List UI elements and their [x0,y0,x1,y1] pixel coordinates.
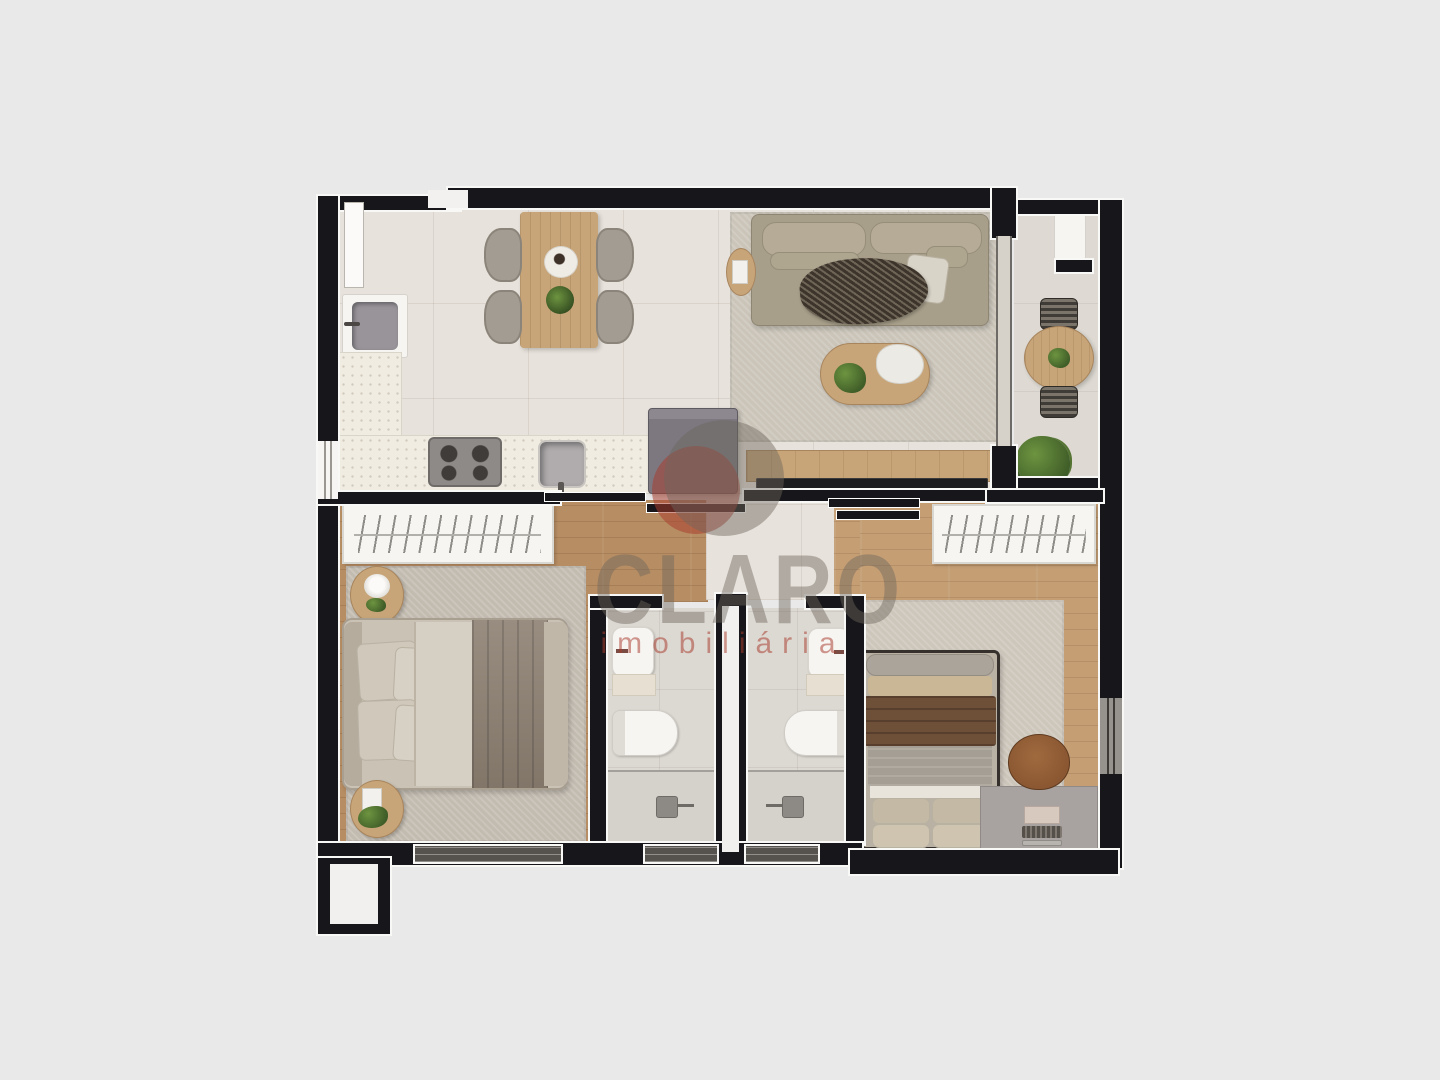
wall-bottom-right [848,848,1120,876]
hall-floor-tile [706,500,836,600]
bathroom1-counter [612,674,656,696]
nightstand-bowl [364,574,390,598]
balcony-glass-door [996,236,1012,446]
side-table-card [732,260,748,284]
bedroom2-window [1100,698,1122,774]
salad-bowl [546,286,574,314]
bath-center-shaft [722,606,739,852]
wall-bath1-left [588,594,608,846]
bathroom1-toilet [612,710,678,756]
bedroom1-sliding-door-panel [646,503,746,513]
kitchen-window [318,441,338,499]
bedroom2-sliding-door-panel [836,510,920,520]
floor-plan-image: CLARO imobiliária [0,0,1440,1080]
bedroom2-wardrobe [932,504,1096,564]
wall-balcony-divider-top [990,186,1018,240]
laundry-faucet-icon [344,322,360,326]
laptop-base [1022,840,1062,846]
laptop-screen [1024,806,1060,824]
dinnerware-plate [544,246,578,278]
dining-chair [596,228,634,282]
dining-chair [484,228,522,282]
bed1-folded-edge [544,622,568,786]
wall-left [316,194,340,850]
dining-chair [484,290,522,344]
bed2-sheet-edge [870,786,990,798]
balcony-niche-wall [1054,258,1094,274]
bathroom2-window [744,844,820,864]
entry-door-leaf [344,202,364,288]
bedroom1-window [413,844,563,864]
refrigerator [648,408,738,494]
bedroom1-sliding-door-rail [544,492,646,502]
bathroom1-window [643,844,719,864]
wall-top-main [446,186,1000,210]
bed2-tan-band [868,676,992,696]
nightstand-plant [366,598,386,612]
laptop-keyboard [1022,826,1062,838]
balcony-table-plant [1048,348,1070,368]
balcony-cabinet [1054,214,1086,260]
cooktop [428,437,502,487]
bed2-brown-blanket [864,696,996,746]
bathroom1-sink [612,627,654,677]
bed1-blanket [472,620,548,788]
wall-bath2-right [844,594,866,846]
bed1-sheet [414,622,476,786]
kitchen-sink [538,440,586,488]
wall-bedroom2-corner [985,488,1105,504]
bathroom2-shower-drain [782,796,804,818]
bed2-pillow [872,798,930,824]
desk-chair [1008,734,1070,790]
bathroom1-shower-drain [656,796,678,818]
bed2-pillow [872,824,930,848]
entry-door-opening [428,190,468,208]
wall-kitchen-bottom [316,490,562,506]
bedroom1-wardrobe [342,504,554,564]
bathroom2-shower-arm-icon [766,804,782,807]
bed2-mattress-roll [866,654,994,676]
bathroom2-toilet [784,710,850,756]
coffee-table-tray [876,344,924,384]
laundry-sink-basin [352,302,398,350]
bed2-duvet [868,746,992,786]
bedroom2-sliding-door-rail [828,498,920,508]
dining-chair [596,290,634,344]
wall-bath1-top [588,594,664,610]
dining-table [520,212,598,348]
sofa-back-cushion [762,222,866,256]
balcony-chair [1040,386,1078,418]
coffee-table-plant [834,363,866,393]
pillar-cavity [330,864,378,924]
bathroom1-shower-arm-icon [678,804,694,807]
